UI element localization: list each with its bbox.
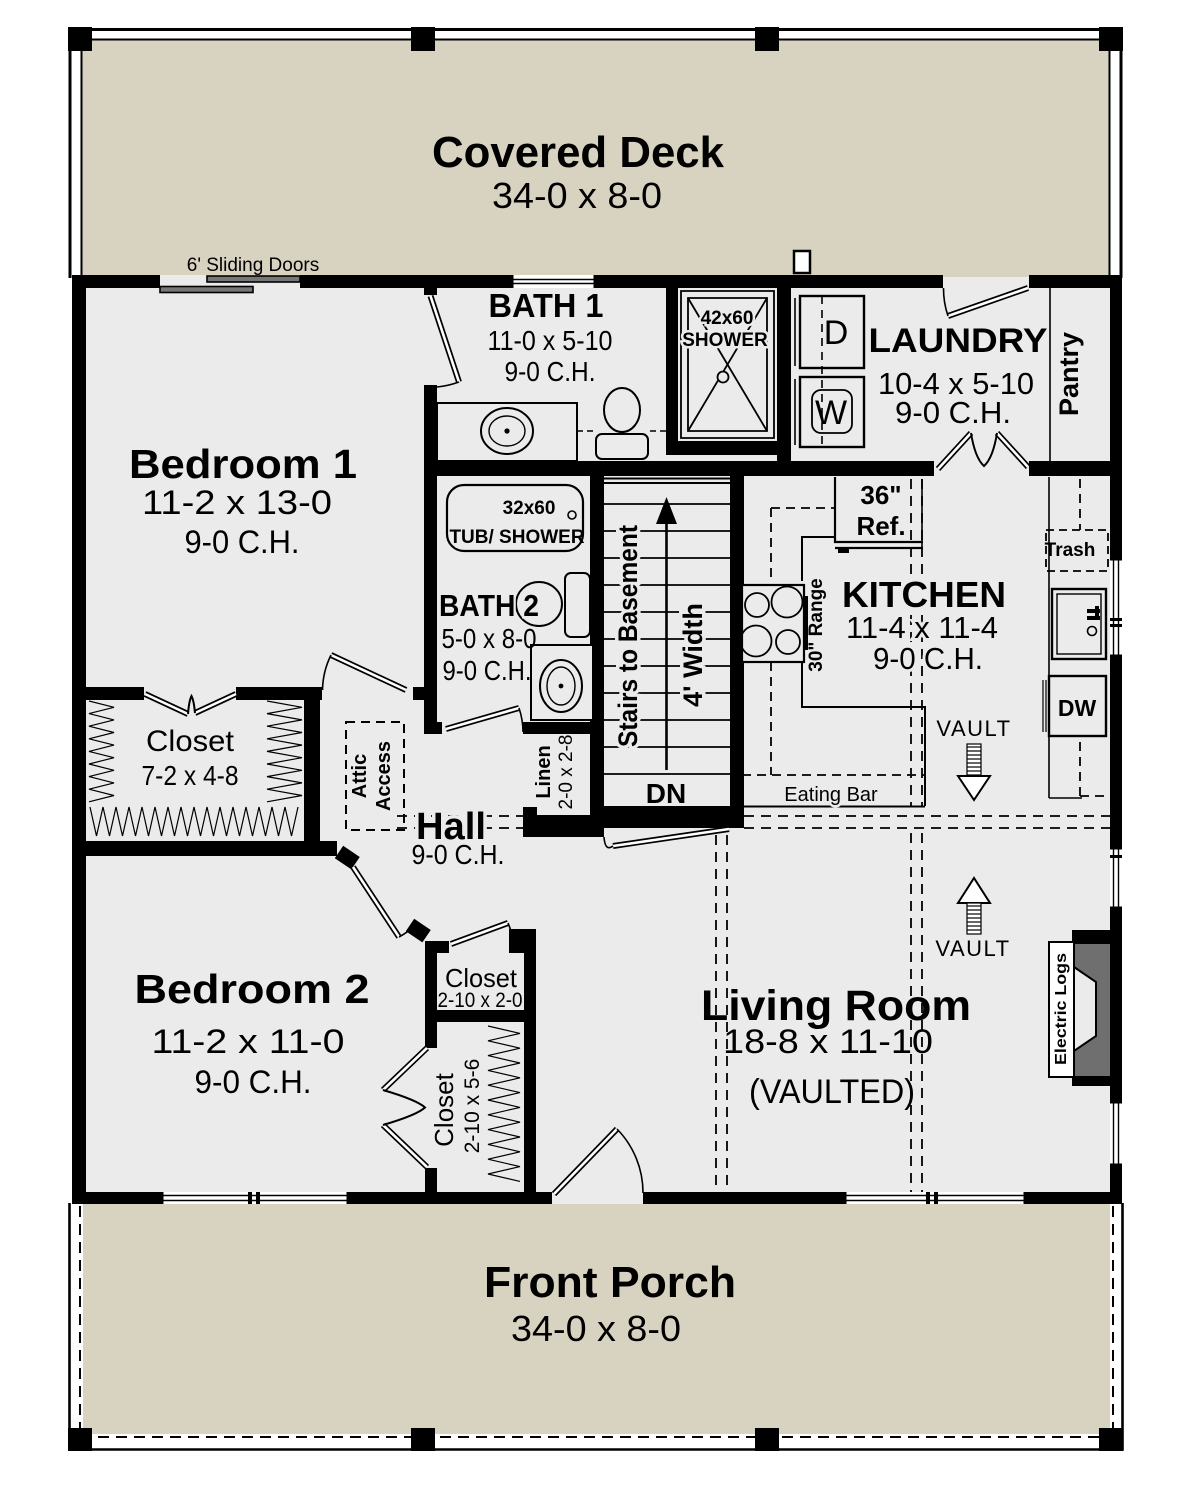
svg-text:11-4 x 11-4: 11-4 x 11-4	[846, 610, 998, 645]
svg-text:(VAULTED): (VAULTED)	[749, 1073, 915, 1111]
svg-text:VAULT: VAULT	[935, 936, 1010, 961]
svg-text:LAUNDRY: LAUNDRY	[869, 322, 1048, 360]
svg-text:Pantry: Pantry	[1054, 332, 1084, 416]
svg-text:11-0 x 5-10: 11-0 x 5-10	[488, 325, 613, 356]
svg-text:KITCHEN: KITCHEN	[842, 574, 1006, 615]
svg-text:Trash: Trash	[1045, 540, 1096, 561]
svg-text:TUB/ SHOWER: TUB/ SHOWER	[449, 527, 584, 548]
svg-text:9-0 C.H.: 9-0 C.H.	[185, 524, 300, 560]
svg-text:DN: DN	[646, 778, 686, 809]
svg-text:34-0 x 8-0: 34-0 x 8-0	[492, 175, 662, 216]
svg-text:Closet: Closet	[146, 725, 235, 758]
svg-text:Front Porch: Front Porch	[484, 1258, 736, 1307]
svg-text:Access: Access	[373, 741, 395, 811]
svg-text:BATH 1: BATH 1	[489, 287, 604, 324]
svg-text:9-0 C.H.: 9-0 C.H.	[873, 641, 983, 676]
svg-text:Stairs to Basement: Stairs to Basement	[613, 525, 643, 747]
svg-text:Closet: Closet	[429, 1072, 459, 1146]
svg-text:VAULT: VAULT	[936, 716, 1011, 741]
svg-text:W: W	[815, 394, 847, 432]
svg-text:Attic: Attic	[349, 754, 371, 798]
svg-text:5-0 x 8-0: 5-0 x 8-0	[442, 623, 537, 654]
svg-text:Eating Bar: Eating Bar	[784, 784, 878, 806]
svg-text:Bedroom 2: Bedroom 2	[135, 966, 370, 1012]
svg-text:2-10 x 5-6: 2-10 x 5-6	[461, 1059, 484, 1154]
svg-text:36": 36"	[860, 480, 901, 510]
svg-text:32x60: 32x60	[503, 498, 556, 519]
svg-text:SHOWER: SHOWER	[682, 330, 768, 351]
svg-text:9-0 C.H.: 9-0 C.H.	[195, 1064, 312, 1100]
svg-text:DW: DW	[1058, 695, 1097, 721]
svg-text:34-0 x 8-0: 34-0 x 8-0	[511, 1308, 681, 1349]
svg-text:42x60: 42x60	[701, 308, 754, 329]
svg-text:18-8 x 11-10: 18-8 x 11-10	[723, 1023, 933, 1061]
svg-text:9-0 C.H.: 9-0 C.H.	[412, 839, 505, 870]
svg-text:11-2 x 13-0: 11-2 x 13-0	[142, 484, 332, 522]
svg-text:4' Width: 4' Width	[678, 603, 708, 707]
svg-text:Covered Deck: Covered Deck	[432, 128, 725, 177]
svg-text:Bedroom 1: Bedroom 1	[129, 441, 357, 487]
svg-text:D: D	[824, 314, 849, 352]
svg-text:7-2 x 4-8: 7-2 x 4-8	[142, 760, 239, 791]
svg-text:Ref.: Ref.	[856, 511, 905, 541]
svg-text:9-0 C.H.: 9-0 C.H.	[443, 655, 532, 686]
svg-text:11-2 x 11-0: 11-2 x 11-0	[152, 1023, 345, 1061]
svg-text:2-10 x 2-0: 2-10 x 2-0	[438, 989, 523, 1012]
svg-text:BATH 2: BATH 2	[439, 588, 539, 623]
svg-text:9-0 C.H.: 9-0 C.H.	[895, 395, 1011, 430]
svg-text:6' Sliding Doors: 6' Sliding Doors	[187, 255, 319, 276]
svg-text:30" Range: 30" Range	[806, 578, 827, 672]
svg-text:9-0 C.H.: 9-0 C.H.	[505, 356, 596, 387]
svg-text:Electric Logs: Electric Logs	[1053, 953, 1070, 1065]
svg-text:Linen: Linen	[533, 745, 555, 798]
svg-text:2-0 x 2-8: 2-0 x 2-8	[556, 735, 577, 810]
